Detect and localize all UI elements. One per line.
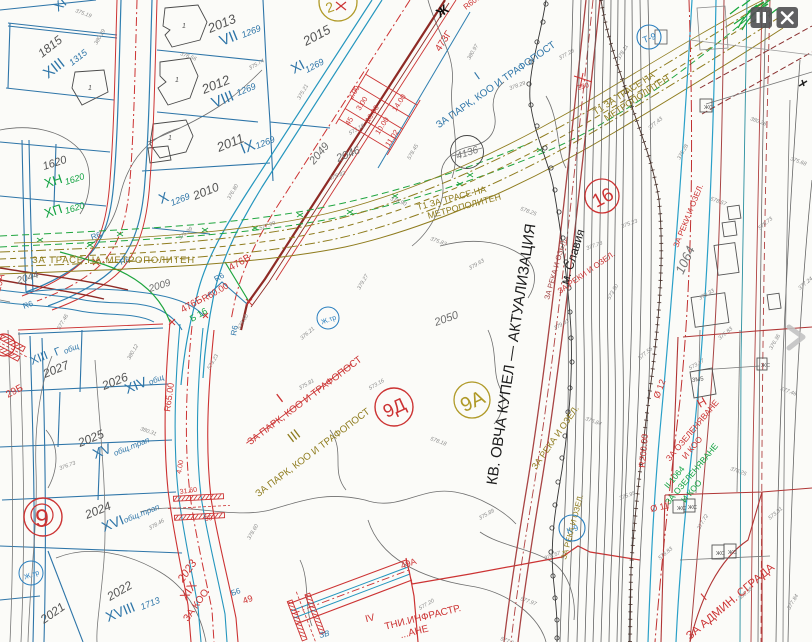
svg-text:1: 1 — [175, 77, 179, 84]
svg-text:ЗА ТРАСЕ НА МЕТРОПОЛИТЕН: ЗА ТРАСЕ НА МЕТРОПОЛИТЕН — [32, 255, 195, 266]
svg-text:ЖС: ЖС — [728, 550, 737, 556]
svg-text:ЖС: ЖС — [688, 505, 697, 511]
svg-text:9: 9 — [35, 505, 49, 533]
svg-text:1: 1 — [168, 135, 172, 142]
svg-text:ЖС: ЖС — [677, 506, 686, 512]
svg-text:1: 1 — [88, 85, 92, 92]
svg-text:ЖС: ЖС — [704, 105, 713, 111]
svg-text:50: 50 — [204, 515, 213, 523]
svg-text:1: 1 — [182, 23, 186, 30]
svg-text:ЖС: ЖС — [761, 363, 770, 369]
svg-text:ЖС: ЖС — [716, 551, 725, 557]
